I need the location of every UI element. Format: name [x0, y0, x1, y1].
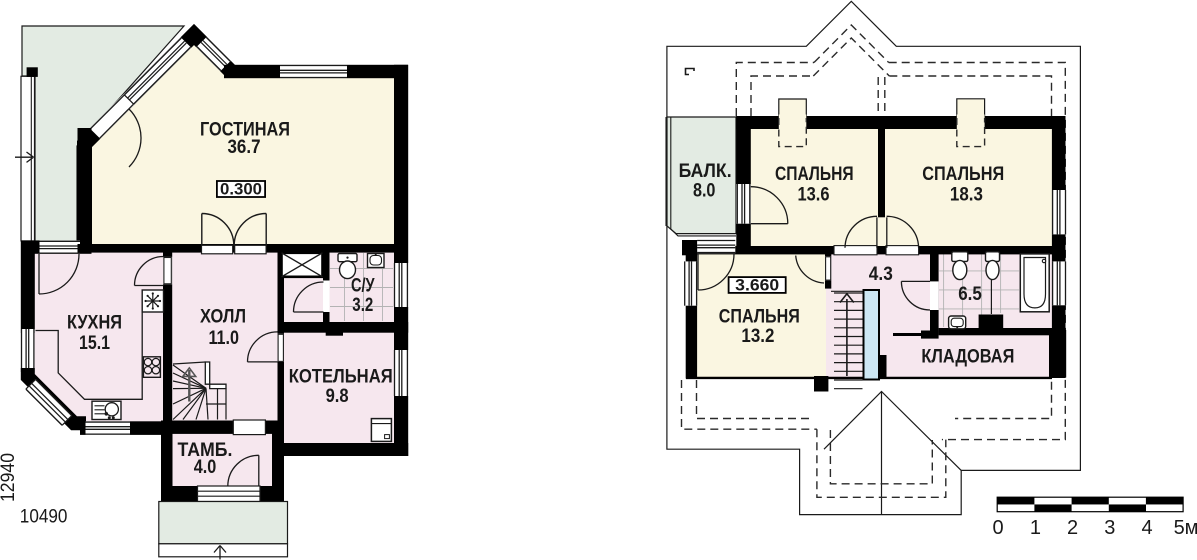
svg-text:0: 0	[992, 517, 1003, 539]
svg-text:4.3: 4.3	[869, 264, 893, 285]
svg-text:13.6: 13.6	[798, 185, 830, 206]
svg-text:11.0: 11.0	[208, 328, 239, 349]
svg-text:КЛАДОВАЯ: КЛАДОВАЯ	[921, 347, 1014, 368]
svg-text:КУХНЯ: КУХНЯ	[67, 313, 122, 334]
svg-text:3.2: 3.2	[352, 295, 373, 316]
svg-text:2: 2	[1067, 517, 1078, 539]
svg-text:1: 1	[1030, 517, 1041, 539]
svg-text:36.7: 36.7	[228, 137, 261, 158]
svg-text:8.0: 8.0	[693, 180, 716, 201]
svg-text:СПАЛЬНЯ: СПАЛЬНЯ	[775, 164, 854, 185]
svg-text:9.8: 9.8	[326, 386, 349, 407]
svg-text:С/У: С/У	[351, 276, 375, 297]
svg-text:ХОЛЛ: ХОЛЛ	[200, 307, 246, 328]
svg-text:12940: 12940	[0, 453, 19, 502]
svg-text:3: 3	[1104, 517, 1115, 539]
svg-text:СПАЛЬНЯ: СПАЛЬНЯ	[922, 164, 1004, 185]
svg-text:15.1: 15.1	[79, 333, 110, 354]
svg-text:0.300: 0.300	[220, 180, 262, 198]
svg-text:10490: 10490	[20, 507, 68, 528]
svg-text:БАЛК.: БАЛК.	[679, 161, 732, 182]
svg-text:3.660: 3.660	[735, 276, 779, 294]
svg-text:18.3: 18.3	[950, 185, 983, 206]
svg-text:6.5: 6.5	[958, 284, 982, 305]
svg-text:4.0: 4.0	[194, 457, 217, 478]
svg-text:4: 4	[1141, 517, 1152, 539]
svg-text:5м: 5м	[1174, 517, 1197, 539]
svg-text:КОТЕЛЬНАЯ: КОТЕЛЬНАЯ	[289, 367, 393, 388]
svg-text:13.2: 13.2	[741, 326, 774, 347]
svg-text:СПАЛЬНЯ: СПАЛЬНЯ	[719, 307, 800, 328]
